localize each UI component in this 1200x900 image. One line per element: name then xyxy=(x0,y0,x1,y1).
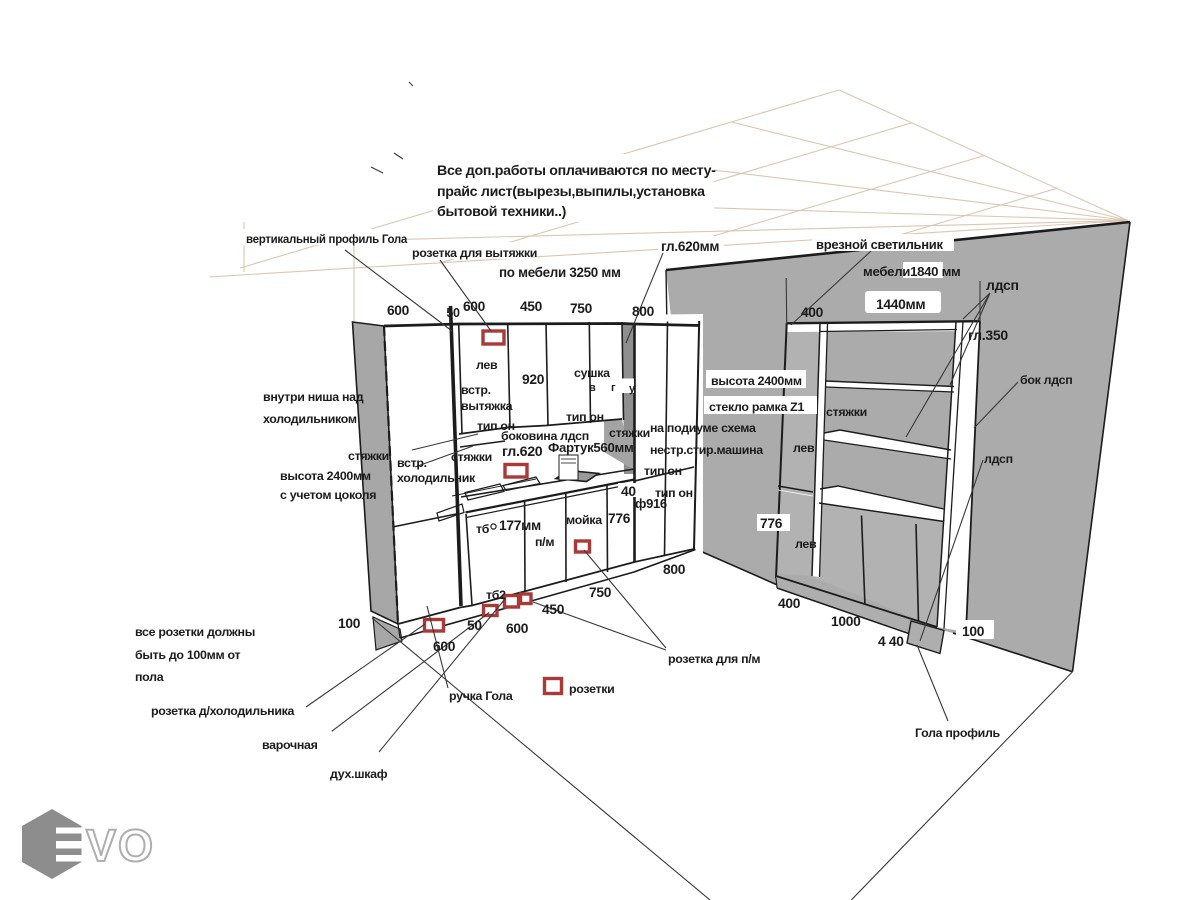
svg-text:600: 600 xyxy=(463,299,486,314)
svg-text:1440мм: 1440мм xyxy=(876,297,925,312)
svg-text:VO: VO xyxy=(86,820,155,871)
svg-text:Все доп.работы оплачиваются по: Все доп.работы оплачиваются по месту- xyxy=(437,163,716,179)
svg-text:дух.шкаф: дух.шкаф xyxy=(330,767,388,781)
svg-text:розетка для п/м: розетка для п/м xyxy=(668,652,760,666)
svg-text:750: 750 xyxy=(570,301,593,316)
svg-text:гл.350: гл.350 xyxy=(968,327,1008,343)
svg-text:800: 800 xyxy=(632,304,655,319)
svg-text:бок лдсп: бок лдсп xyxy=(1020,373,1072,387)
svg-text:стяжки: стяжки xyxy=(451,450,492,464)
svg-text:высота 2400мм: высота 2400мм xyxy=(280,469,371,483)
svg-text:4 40: 4 40 xyxy=(878,634,904,649)
svg-text:розетка д/холодильника: розетка д/холодильника xyxy=(151,704,295,718)
svg-text:450: 450 xyxy=(520,299,543,314)
svg-text:пола: пола xyxy=(135,670,164,684)
svg-text:на подиуме схема: на подиуме схема xyxy=(650,421,756,435)
svg-text:450: 450 xyxy=(542,602,565,617)
svg-text:лев: лев xyxy=(476,358,498,372)
svg-text:варочная: варочная xyxy=(262,738,318,752)
svg-text:п/м: п/м xyxy=(535,535,554,549)
svg-text:стекло рамка Z1: стекло рамка Z1 xyxy=(709,400,804,414)
svg-text:тип он: тип он xyxy=(655,486,693,500)
svg-text:все розетки должны: все розетки должны xyxy=(135,625,255,639)
svg-text:920: 920 xyxy=(522,372,545,387)
svg-text:гл.620: гл.620 xyxy=(502,444,543,460)
svg-text:бытовой техники..): бытовой техники..) xyxy=(437,204,567,220)
svg-text:розетка для вытяжки: розетка для вытяжки xyxy=(412,246,537,260)
svg-text:стяжки: стяжки xyxy=(609,426,650,440)
svg-text:600: 600 xyxy=(433,639,456,654)
svg-text:холодильник: холодильник xyxy=(397,471,476,485)
svg-text:высота 2400мм: высота 2400мм xyxy=(711,374,802,388)
svg-text:лдсп: лдсп xyxy=(984,452,1013,466)
svg-text:нестр.стир.машина: нестр.стир.машина xyxy=(650,443,763,457)
svg-text:Фартук560мм: Фартук560мм xyxy=(548,440,633,455)
svg-text:тб2: тб2 xyxy=(486,588,506,602)
svg-text:лдсп: лдсп xyxy=(986,277,1019,293)
svg-text:вертикальный профиль Гола: вертикальный профиль Гола xyxy=(246,234,408,246)
svg-text:холодильником: холодильником xyxy=(263,412,357,426)
svg-text:600: 600 xyxy=(387,303,410,318)
svg-text:врезной светильник: врезной светильник xyxy=(816,237,943,252)
svg-text:1000: 1000 xyxy=(831,614,861,629)
svg-text:стяжки: стяжки xyxy=(348,449,389,463)
svg-text:внутри ниша над: внутри ниша над xyxy=(263,390,364,404)
svg-text:Гола профиль: Гола профиль xyxy=(915,726,1001,740)
svg-text:стяжки: стяжки xyxy=(826,405,867,419)
svg-text:50: 50 xyxy=(467,618,482,633)
svg-text:в: в xyxy=(589,382,596,394)
svg-text:г: г xyxy=(611,382,616,394)
svg-text:встр.: встр. xyxy=(461,383,491,397)
svg-text:лев: лев xyxy=(795,537,817,551)
svg-text:по мебели 3250 мм: по мебели 3250 мм xyxy=(499,265,621,280)
svg-text:прайс лист(вырезы,выпилы,устан: прайс лист(вырезы,выпилы,установка xyxy=(437,184,705,200)
svg-text:800: 800 xyxy=(663,562,686,577)
svg-text:лев: лев xyxy=(793,441,815,455)
svg-text:776: 776 xyxy=(608,511,631,526)
svg-text:гл.620мм: гл.620мм xyxy=(661,239,719,254)
svg-text:177мм: 177мм xyxy=(499,518,541,533)
svg-text:быть до 100мм от: быть до 100мм от xyxy=(135,648,240,662)
svg-text:вытяжка: вытяжка xyxy=(461,399,513,413)
svg-text:с учетом цоколя: с учетом цоколя xyxy=(280,488,376,502)
svg-text:тб: тб xyxy=(476,522,490,536)
svg-text:400: 400 xyxy=(801,305,824,320)
svg-text:мойка: мойка xyxy=(566,513,602,527)
svg-text:100: 100 xyxy=(338,616,361,631)
svg-text:тип он: тип он xyxy=(644,464,682,478)
svg-text:50: 50 xyxy=(446,306,460,320)
svg-text:750: 750 xyxy=(589,585,612,600)
svg-text:сушка: сушка xyxy=(574,366,610,380)
svg-text:400: 400 xyxy=(778,596,801,611)
svg-text:тип он: тип он xyxy=(566,410,604,424)
svg-text:ручка Гола: ручка Гола xyxy=(449,689,513,703)
svg-text:776: 776 xyxy=(760,516,783,531)
svg-text:100: 100 xyxy=(962,624,985,639)
svg-text:розетки: розетки xyxy=(569,682,614,696)
svg-text:мебели1840 мм: мебели1840 мм xyxy=(863,264,961,279)
svg-text:600: 600 xyxy=(506,621,529,636)
svg-text:встр.: встр. xyxy=(397,456,427,470)
